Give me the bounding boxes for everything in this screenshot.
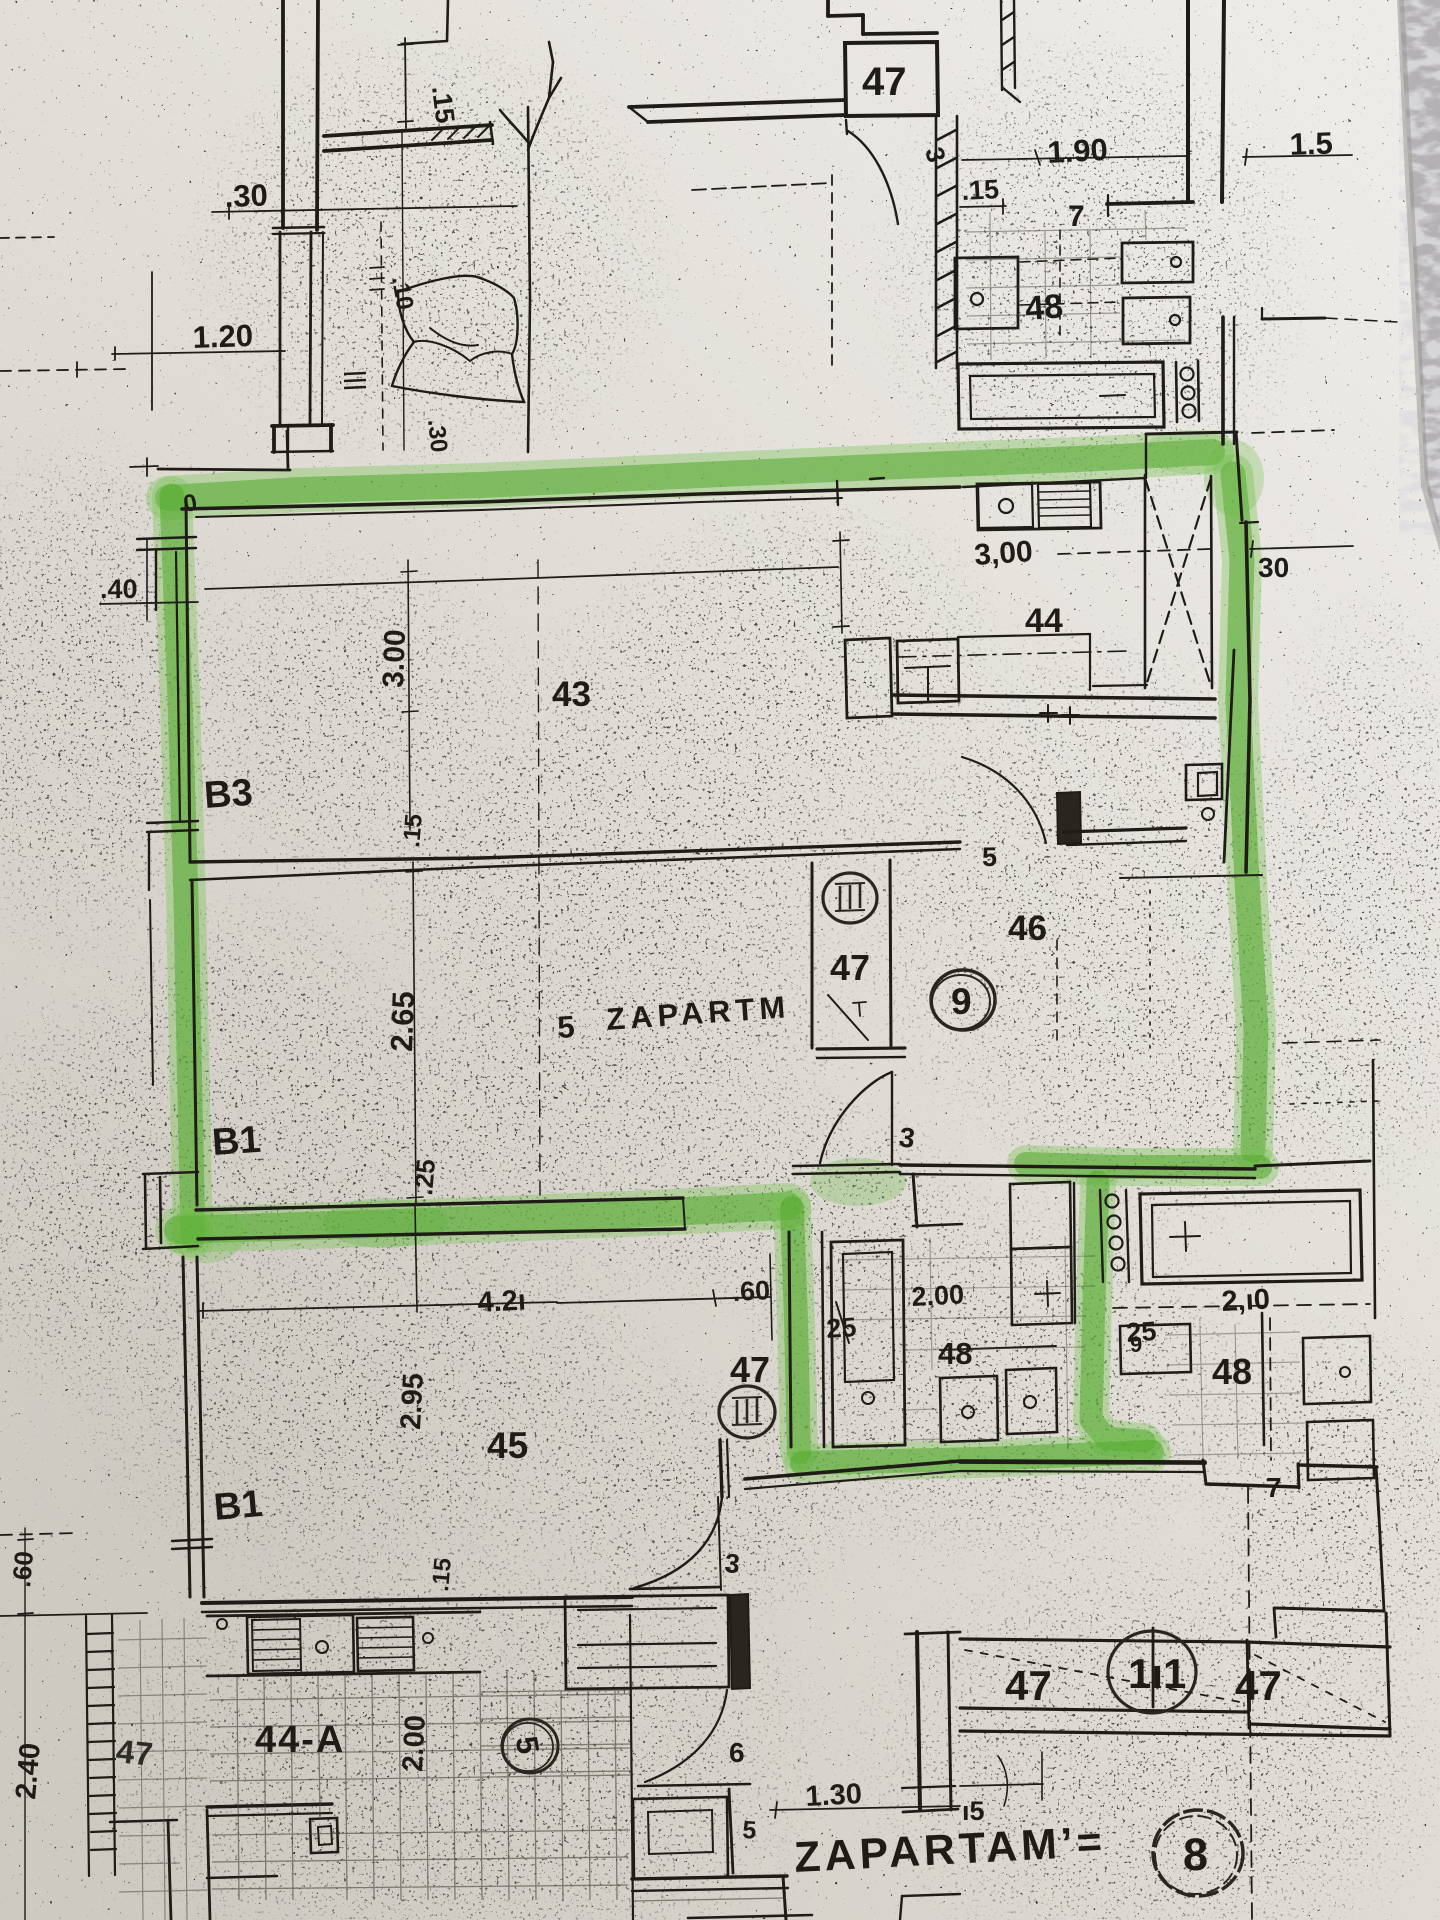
svg-text:.60: .60: [732, 1275, 771, 1307]
svg-text:.30: .30: [224, 178, 268, 214]
svg-text:9: 9: [951, 981, 972, 1022]
svg-text:47: 47: [1005, 1662, 1052, 1709]
svg-text:6: 6: [729, 1737, 745, 1768]
svg-text:1.20: 1.20: [192, 318, 254, 355]
svg-text:.10: .10: [386, 274, 418, 312]
svg-text:1ı1: 1ı1: [1128, 1650, 1186, 1697]
svg-text:48: 48: [938, 1336, 972, 1371]
svg-text:7: 7: [1068, 200, 1085, 233]
svg-text:ı5: ı5: [962, 1796, 985, 1826]
svg-text:5: 5: [982, 842, 997, 872]
svg-text:B3: B3: [203, 772, 254, 817]
svg-text:2.40: 2.40: [10, 1742, 47, 1801]
svg-text:.15: .15: [398, 813, 428, 849]
svg-text:2.95: 2.95: [395, 1372, 430, 1430]
svg-text:2.00: 2.00: [911, 1279, 965, 1312]
svg-text:1.5: 1.5: [1289, 126, 1333, 162]
svg-text:30: 30: [1258, 552, 1289, 583]
svg-text:1.30: 1.30: [805, 1778, 863, 1813]
svg-text:3: 3: [723, 1548, 741, 1579]
svg-text:B1: B1: [211, 1119, 262, 1164]
svg-text:.25: .25: [408, 1158, 441, 1197]
svg-text:B1: B1: [212, 1483, 264, 1529]
svg-text:48: 48: [1212, 1351, 1252, 1392]
svg-text:5: 5: [742, 1816, 757, 1845]
svg-text:44: 44: [1025, 602, 1063, 640]
svg-text:48: 48: [1024, 287, 1064, 328]
svg-text:47: 47: [830, 947, 870, 988]
svg-text:.30: .30: [422, 418, 452, 454]
svg-text:47: 47: [862, 60, 907, 104]
svg-text:47: 47: [730, 1349, 770, 1390]
svg-text:47: 47: [114, 1732, 154, 1773]
svg-text:.15: .15: [427, 1557, 457, 1593]
svg-text:47: 47: [1235, 1662, 1282, 1709]
svg-text:.15: .15: [426, 84, 460, 125]
svg-text:.15: .15: [961, 174, 1000, 206]
svg-text:2,ı0: 2,ı0: [1221, 1284, 1271, 1318]
svg-text:2.00: 2.00: [397, 1714, 432, 1772]
svg-text:4.2ı: 4.2ı: [477, 1285, 527, 1319]
svg-text:.60: .60: [6, 1550, 39, 1589]
svg-text:46: 46: [1008, 909, 1047, 948]
svg-text:5: 5: [557, 1009, 576, 1045]
svg-text:25: 25: [825, 1312, 857, 1344]
svg-text:3.00: 3.00: [377, 629, 412, 689]
svg-text:1.90: 1.90: [1047, 132, 1109, 170]
svg-text:45: 45: [487, 1425, 528, 1466]
svg-text:3,00: 3,00: [973, 535, 1034, 572]
svg-text:.40: .40: [100, 574, 138, 604]
svg-text:8: 8: [1183, 1829, 1208, 1880]
svg-text:9: 9: [1130, 1332, 1142, 1357]
svg-text:2.65: 2.65: [384, 991, 421, 1053]
svg-text:44-A: 44-A: [255, 1719, 345, 1761]
svg-text:43: 43: [552, 675, 591, 714]
svg-text:7: 7: [1266, 1472, 1282, 1503]
